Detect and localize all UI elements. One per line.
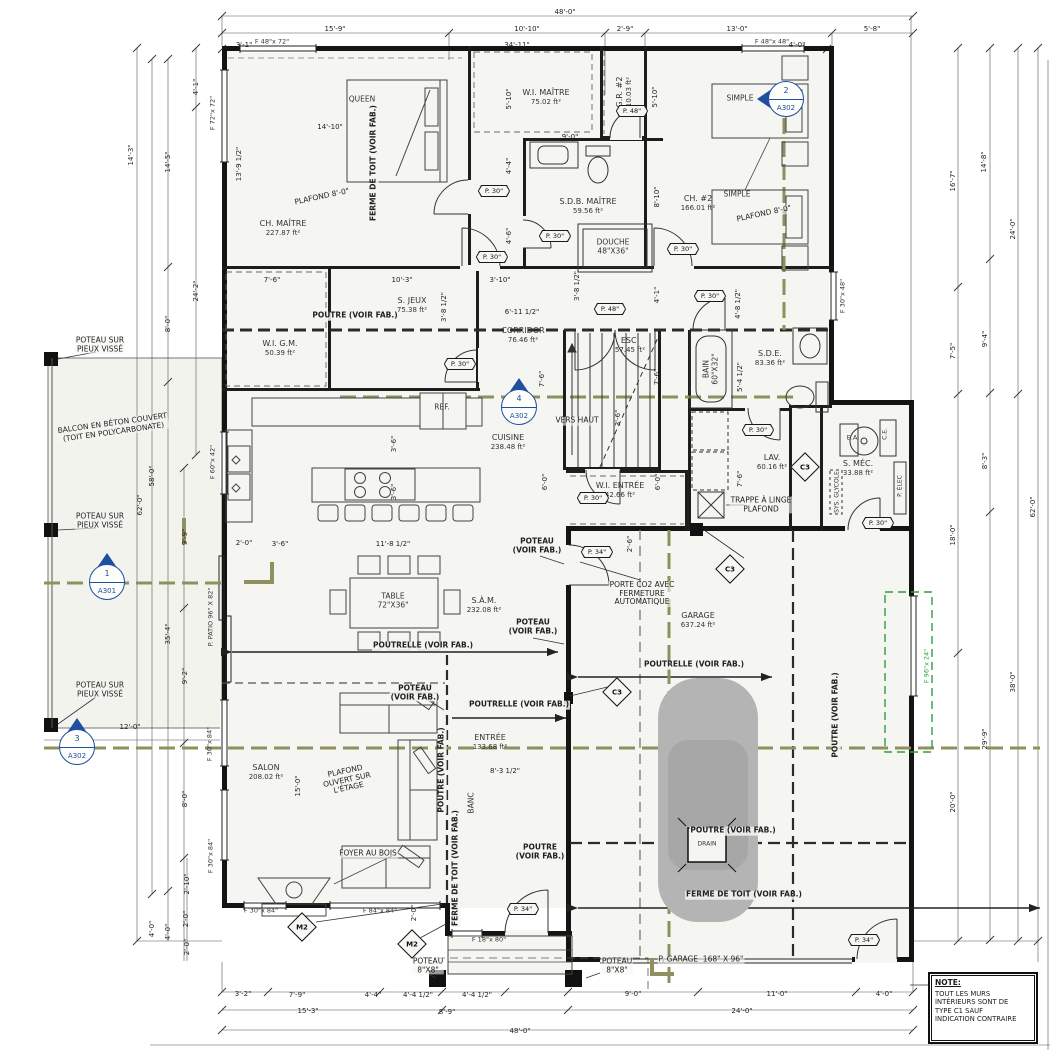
room-area: 76.46 ft² bbox=[508, 336, 538, 344]
room-label-ch-maitre: CH. MAÎTRE 227.87 ft² bbox=[260, 219, 307, 237]
dimensions-9-9: 9'-9" bbox=[181, 529, 189, 546]
annotations-poteau-8-x8: POTEAU 8"X8" bbox=[412, 957, 444, 974]
dimensions-2-6: 2'-6" bbox=[626, 536, 634, 553]
wall-type-tag-c3-0: C3 bbox=[790, 452, 820, 482]
annotations-poteau-voir-fab: POTEAU (VOIR FAB.) bbox=[390, 684, 441, 701]
annotations-ferme-de-toit-voir-fab: FERME DE TOIT (VOIR FAB.) bbox=[370, 104, 379, 222]
door-tag-text: P. 30" bbox=[695, 291, 725, 301]
furniture-labels-sys-glycole: SYS. GLYCOLE bbox=[835, 471, 842, 513]
door-tag-text: P. 30" bbox=[578, 493, 608, 503]
room-area: 57.45 ft² bbox=[615, 346, 645, 354]
dimensions-9-2: 9'-2" bbox=[181, 668, 189, 685]
room-area: 238.48 ft² bbox=[491, 443, 526, 451]
annotations-poutre-voir-fab: POUTRE (VOIR FAB.) bbox=[515, 843, 566, 860]
dimensions-2-0: 2'-0" bbox=[236, 539, 253, 547]
wall-type-tag-c3-2: C3 bbox=[602, 677, 632, 707]
dimensions-8-9: 8'-9" bbox=[439, 1008, 456, 1016]
dimensions-3-2: 3'-2" bbox=[235, 990, 252, 998]
room-area: 60.16 ft² bbox=[757, 463, 787, 471]
dimensions-15-9: 15'-9" bbox=[324, 25, 345, 33]
dimensions-4-1: 4'-1" bbox=[653, 287, 661, 304]
room-area: 166.01 ft² bbox=[681, 204, 716, 212]
dimensions-8-3: 8'-3" bbox=[981, 453, 989, 470]
furniture-labels-banc: BANC bbox=[468, 792, 477, 813]
dimensions-3-10: 3'-10" bbox=[489, 276, 510, 284]
annotations-poteau-sur-pieux-viss: POTEAU SUR PIEUX VISSÉ bbox=[75, 512, 125, 529]
annotations-plafond-ouvert-sur-l-tage: PLAFOND OUVERT SUR L'ÉTAGE bbox=[320, 762, 375, 798]
window-tags-f-60-x-42: F 60"x 42" bbox=[209, 445, 216, 479]
room-area: 50.39 ft² bbox=[265, 349, 295, 357]
wall-type-tag-m2-4: M2 bbox=[397, 929, 427, 959]
dimensions-6-11-1-2: 6'-11 1/2" bbox=[505, 308, 540, 316]
dimensions-48-0: 48'-0" bbox=[509, 1027, 530, 1035]
room-area: 232.08 ft² bbox=[467, 606, 502, 614]
section-circle: 1A301 bbox=[89, 564, 125, 600]
dimensions-3-6: 3'-6" bbox=[614, 410, 622, 427]
door-tag-p-30-4: P. 30" bbox=[694, 290, 726, 302]
annotations-poteau-voir-fab: POTEAU (VOIR FAB.) bbox=[512, 537, 563, 554]
room-name: S. MÉC. bbox=[843, 459, 873, 468]
door-tag-p-30-5: P. 30" bbox=[444, 358, 476, 370]
wall-type-text: C3 bbox=[612, 688, 622, 696]
dimensions-7-5: 7'-5" bbox=[949, 343, 957, 360]
room-name: CH. MAÎTRE bbox=[260, 219, 307, 228]
dimensions-5-10: 5'-10" bbox=[651, 86, 659, 107]
section-sheet: A302 bbox=[777, 100, 795, 117]
room-area: 75.02 ft² bbox=[531, 98, 561, 106]
room-area: 208.02 ft² bbox=[249, 773, 284, 781]
room-name: CORRIDOR bbox=[501, 326, 544, 335]
floor-plan: CH. MAÎTRE 227.87 ft²W.I. MAÎTRE 75.02 f… bbox=[0, 0, 1058, 1054]
room-name: S.D.B. MAÎTRE bbox=[559, 197, 616, 206]
section-circle: 2A302 bbox=[768, 81, 804, 117]
note-body: TOUT LES MURS INTÉRIEURS SONT DE TYPE C1… bbox=[935, 990, 1031, 1024]
annotations-plafond-8-0: PLAFOND 8'-0" bbox=[293, 187, 351, 207]
room-area: 227.87 ft² bbox=[266, 229, 301, 237]
room-name: S.À.M. bbox=[472, 596, 497, 605]
dimensions-58-0: 58'-0" bbox=[148, 465, 156, 486]
annotations-balcon-en-b-ton-couvert-toit-e: BALCON EN BÉTON COUVERT (TOIT EN POLYCAR… bbox=[56, 412, 170, 445]
annotations-plafond-8-0: PLAFOND 8'-0" bbox=[735, 204, 793, 224]
room-name: CH. #2 bbox=[684, 194, 712, 203]
dimensions-12-0: 12'-0" bbox=[119, 723, 140, 731]
room-area: 637.24 ft² bbox=[681, 621, 716, 629]
dimensions-4-1: 4'-1" bbox=[192, 79, 200, 96]
dimensions-4-0: 4'-0" bbox=[164, 924, 172, 941]
door-tag-p-30-0: P. 30" bbox=[478, 185, 510, 197]
annotations-vers-haut: VERS HAUT bbox=[554, 417, 599, 426]
dimensions-7-6: 7'-6" bbox=[736, 471, 744, 488]
dimensions-7-6: 7'-6" bbox=[653, 369, 661, 386]
dimensions-9-4: 9'-4" bbox=[981, 331, 989, 348]
section-marker-1-a301: 1A301 bbox=[89, 564, 125, 600]
door-tag-text: P. 34" bbox=[582, 547, 612, 557]
dimensions-4-4-1-2: 4'-4 1/2" bbox=[462, 991, 492, 999]
window-tags-f-30-x-84: F 30"x 84" bbox=[207, 839, 214, 873]
dimensions-15-3: 15'-3" bbox=[297, 1007, 318, 1015]
window-tags-f-30-x-84: F 30"x 84" bbox=[206, 727, 213, 761]
room-area: 133.68 ft² bbox=[473, 743, 508, 751]
section-circle: 4A302 bbox=[501, 389, 537, 425]
annotations-trappe-linge-plafond: TRAPPE À LINGE PLAFOND bbox=[730, 496, 793, 513]
room-label-s-jeux: S. JEUX 75.38 ft² bbox=[397, 296, 427, 314]
room-label-corridor: CORRIDOR 76.46 ft² bbox=[501, 326, 544, 344]
furniture-labels-simple: SIMPLE bbox=[727, 95, 754, 104]
wall-type-tag-c3-1: C3 bbox=[715, 554, 745, 584]
window-tags-f-30-x-48: F 30"x 48" bbox=[839, 279, 846, 313]
furniture-labels-drain: DRAIN bbox=[698, 842, 717, 849]
annotations-poteau-8-x8: POTEAU 8"X8" bbox=[601, 957, 633, 974]
annotations-poutre-voir-fab: POUTRE (VOIR FAB.) bbox=[832, 671, 841, 758]
room-name: CUISINE bbox=[492, 433, 524, 442]
dimensions-3-6: 3'-6" bbox=[390, 436, 398, 453]
section-sheet: A302 bbox=[510, 408, 528, 425]
furniture-labels-ref: REF. bbox=[434, 404, 449, 413]
dimensions-13-9-1-2: 13'-9 1/2" bbox=[235, 147, 243, 182]
room-label-esc: ESC. 57.45 ft² bbox=[615, 336, 645, 354]
wall-type-text: M2 bbox=[296, 923, 308, 931]
section-sheet: A302 bbox=[68, 748, 86, 765]
door-tag-text: P. 30" bbox=[540, 231, 570, 241]
section-marker-4-a302: 4A302 bbox=[501, 389, 537, 425]
section-number: 1 bbox=[90, 565, 124, 583]
dimensions-16-7: 16'-7" bbox=[949, 170, 957, 191]
room-area: 59.56 ft² bbox=[573, 207, 603, 215]
window-tags-f-84-x-84: F 84"x 84" bbox=[363, 907, 397, 914]
room-label-ch-2: CH. #2 166.01 ft² bbox=[681, 194, 716, 212]
dimensions-34-11: 34'-11" bbox=[504, 41, 529, 49]
annotations-foyer-au-bois: FOYER AU BOIS bbox=[338, 850, 398, 859]
dimensions-3-1: 3'-1" bbox=[236, 41, 253, 49]
door-tag-text: P. 34" bbox=[508, 904, 538, 914]
room-name: ESC. bbox=[621, 336, 639, 345]
annotations-poutrelle-voir-fab: POUTRELLE (VOIR FAB.) bbox=[372, 642, 474, 651]
dimensions-8-10: 8'-10" bbox=[653, 186, 661, 207]
annotations-poutre-voir-fab: POUTRE (VOIR FAB.) bbox=[689, 827, 776, 836]
door-tag-p-34-11: P. 34" bbox=[581, 546, 613, 558]
section-marker-2-a302: 2A302 bbox=[768, 81, 804, 117]
furniture-labels-p-lec: P. ÉLEC bbox=[898, 475, 905, 497]
door-tag-text: P. 30" bbox=[445, 359, 475, 369]
note-box: NOTE: TOUT LES MURS INTÉRIEURS SONT DE T… bbox=[928, 972, 1038, 1044]
dimensions-7-9: 7'-9" bbox=[289, 991, 306, 999]
dimensions-14-5: 14'-5" bbox=[164, 151, 172, 172]
wall-type-text: C3 bbox=[725, 565, 735, 573]
dimensions-5-10: 5'-10" bbox=[505, 88, 513, 109]
annotations-poutre-voir-fab: POUTRE (VOIR FAB.) bbox=[438, 726, 447, 813]
door-tag-text: P. 30" bbox=[668, 244, 698, 254]
dimensions-5-4-1-2: 5'-4 1/2" bbox=[736, 362, 744, 392]
window-tags-f-96-x-24: F 96"x 24" bbox=[923, 649, 930, 683]
room-area: 33.88 ft² bbox=[843, 469, 873, 477]
annotations-ferme-de-toit-voir-fab: FERME DE TOIT (VOIR FAB.) bbox=[685, 891, 803, 900]
dimensions-2-9: 2'-9" bbox=[617, 25, 634, 33]
dimensions-24-0: 24'-0" bbox=[1009, 218, 1017, 239]
dimensions-8-0: 8'-0" bbox=[181, 791, 189, 808]
room-area: 10.03 ft² bbox=[625, 77, 633, 107]
room-area: 42.66 ft² bbox=[605, 491, 635, 499]
dimensions-7-6: 7'-6" bbox=[538, 371, 546, 388]
window-tags-f-18-x-80: F 18"x 80" bbox=[472, 936, 506, 943]
room-label-s-mec: S. MÉC. 33.88 ft² bbox=[843, 459, 873, 477]
door-tag-text: P. 48" bbox=[617, 106, 647, 116]
dimensions-3-6: 3'-6" bbox=[390, 484, 398, 501]
room-label-sam: S.À.M. 232.08 ft² bbox=[467, 596, 502, 614]
room-label-wi-gm: W.I. G.M. 50.39 ft² bbox=[262, 339, 297, 357]
dimensions-4-4: 4'-4" bbox=[505, 158, 513, 175]
dimensions-62-0: 62'-0" bbox=[136, 494, 144, 515]
dimensions-35-4: 35'-4" bbox=[164, 623, 172, 644]
dimensions-4-0: 4'-0" bbox=[789, 41, 806, 49]
room-name: W.I. ENTRÉE bbox=[596, 481, 645, 490]
dimensions-4-0: 4'-0" bbox=[148, 921, 156, 938]
section-sheet: A301 bbox=[98, 583, 116, 600]
room-name: ENTRÉE bbox=[474, 733, 506, 742]
dimensions-6-0: 6'-0" bbox=[541, 474, 549, 491]
annotations-poutrelle-voir-fab: POUTRELLE (VOIR FAB.) bbox=[468, 701, 570, 710]
room-name: G.R. #2 bbox=[615, 77, 624, 108]
section-marker-3-a302: 3A302 bbox=[59, 729, 95, 765]
annotations-poutre-voir-fab: POUTRE (VOIR FAB.) bbox=[311, 312, 398, 321]
annotations-porte-co2-avec-fermeture-autom: PORTE CO2 AVEC FERMETURE AUTOMATIQUE bbox=[609, 581, 676, 607]
annotations-poutrelle-voir-fab: POUTRELLE (VOIR FAB.) bbox=[643, 661, 745, 670]
dimensions-15-0: 15'-0" bbox=[294, 775, 302, 796]
door-tag-text: P. 48" bbox=[595, 304, 625, 314]
furniture-labels-queen: QUEEN bbox=[349, 96, 375, 105]
room-name: S. JEUX bbox=[398, 296, 427, 305]
dimensions-8-0: 8'-0" bbox=[164, 316, 172, 333]
room-name: GARAGE bbox=[681, 611, 715, 620]
dimensions-38-0: 38'-0" bbox=[1009, 671, 1017, 692]
annotations-poteau-sur-pieux-viss: POTEAU SUR PIEUX VISSÉ bbox=[75, 336, 125, 353]
annotations-ferme-de-toit-voir-fab: FERME DE TOIT (VOIR FAB.) bbox=[452, 809, 461, 927]
dimensions-20-0: 20'-0" bbox=[949, 791, 957, 812]
window-tags-f-30-x-84: F 30"x 84" bbox=[244, 907, 278, 914]
room-area: 83.36 ft² bbox=[755, 359, 785, 367]
furniture-labels-douche-48-x36: DOUCHE 48"X36" bbox=[597, 238, 630, 255]
dimensions-13-0: 13'-0" bbox=[726, 25, 747, 33]
dimensions-3-6: 3'-6" bbox=[272, 540, 289, 548]
dimensions-4-0: 4'-0" bbox=[876, 990, 893, 998]
section-number: 3 bbox=[60, 730, 94, 748]
door-tag-p-48-6: P. 48" bbox=[616, 105, 648, 117]
room-name: W.I. G.M. bbox=[262, 339, 297, 348]
wall-type-text: M2 bbox=[406, 940, 418, 948]
furniture-labels-e-a: E.A. bbox=[847, 434, 860, 441]
room-area: 75.38 ft² bbox=[397, 306, 427, 314]
dimensions-2-0: 2'-0" bbox=[183, 939, 191, 956]
window-tags-p-patio-96-x-82: P. PATIO 96" X 82" bbox=[207, 588, 214, 647]
note-title: NOTE: bbox=[935, 978, 1031, 987]
room-label-salon: SALON 208.02 ft² bbox=[249, 763, 284, 781]
door-tag-p-30-3: P. 30" bbox=[667, 243, 699, 255]
furniture-labels-table-72-x36: TABLE 72"X36" bbox=[377, 592, 408, 609]
dimensions-24-0: 24'-0" bbox=[731, 1007, 752, 1015]
door-tag-p-34-13: P. 34" bbox=[848, 934, 880, 946]
room-label-cuisine: CUISINE 238.48 ft² bbox=[491, 433, 526, 451]
dimensions-24-2: 24'-2" bbox=[192, 280, 200, 301]
plan-labels: CH. MAÎTRE 227.87 ft²W.I. MAÎTRE 75.02 f… bbox=[0, 0, 1058, 1054]
room-label-wi-maitre: W.I. MAÎTRE 75.02 ft² bbox=[522, 88, 569, 106]
dimensions-11-8-1-2: 11'-8 1/2" bbox=[376, 540, 411, 548]
room-name: S.D.E. bbox=[758, 349, 782, 358]
dimensions-9-0: 9'-0" bbox=[625, 990, 642, 998]
dimensions-4-4: 4'-4" bbox=[365, 991, 382, 999]
annotations-poteau-sur-pieux-viss: POTEAU SUR PIEUX VISSÉ bbox=[75, 681, 125, 698]
dimensions-62-0: 62'-0" bbox=[1029, 496, 1037, 517]
dimensions-3-8-1-2: 3'-8 1/2" bbox=[440, 292, 448, 322]
door-tag-text: P. 34" bbox=[849, 935, 879, 945]
dimensions-14-10: 14'-10" bbox=[317, 123, 342, 131]
window-tags-f-48-x-48: F 48"x 48" bbox=[755, 38, 789, 45]
dimensions-4-8-1-2: 4'-8 1/2" bbox=[734, 289, 742, 319]
dimensions-2-0: 2'-0" bbox=[410, 905, 418, 922]
window-tags-f-72-x-72: F 72"x 72" bbox=[209, 96, 216, 130]
dimensions-3-8-1-2: 3'-8 1/2" bbox=[573, 271, 581, 301]
dimensions-6-0: 6'-0" bbox=[654, 474, 662, 491]
room-label-garage: GARAGE 637.24 ft² bbox=[681, 611, 716, 629]
dimensions-14-8: 14'-8" bbox=[980, 151, 988, 172]
dimensions-4-6: 4'-6" bbox=[505, 228, 513, 245]
door-tag-p-30-9: P. 30" bbox=[577, 492, 609, 504]
door-tag-p-30-10: P. 30" bbox=[862, 517, 894, 529]
dimensions-48-0: 48'-0" bbox=[554, 8, 575, 16]
room-name: LAV. bbox=[764, 453, 781, 462]
room-label-gr-2: G.R. #2 10.03 ft² bbox=[615, 77, 633, 108]
furniture-labels-c-e: C.E. bbox=[883, 428, 890, 440]
room-label-lav: LAV. 60.16 ft² bbox=[757, 453, 787, 471]
wall-type-text: C3 bbox=[800, 463, 810, 471]
dimensions-4-4-1-2: 4'-4 1/2" bbox=[403, 991, 433, 999]
room-name: W.I. MAÎTRE bbox=[522, 88, 569, 97]
dimensions-14-3: 14'-3" bbox=[127, 144, 135, 165]
dimensions-7-6: 7'-6" bbox=[264, 276, 281, 284]
section-number: 4 bbox=[502, 390, 536, 408]
door-tag-text: P. 30" bbox=[477, 252, 507, 262]
dimensions-10-3: 10'-3" bbox=[391, 276, 412, 284]
dimensions-2-10: 2'-10" bbox=[183, 873, 191, 894]
dimensions-18-0: 18'-0" bbox=[949, 524, 957, 545]
wall-type-tag-m2-3: M2 bbox=[287, 912, 317, 942]
section-circle: 3A302 bbox=[59, 729, 95, 765]
furniture-labels-simple: SIMPLE bbox=[724, 191, 751, 200]
window-tags-f-48-x-72: F 48"x 72" bbox=[255, 38, 289, 45]
section-number: 2 bbox=[769, 82, 803, 100]
furniture-labels-bain-60-x32: BAIN 60"X32" bbox=[702, 353, 719, 384]
dimensions-9-0: 9'-0" bbox=[562, 133, 579, 141]
door-tag-text: P. 30" bbox=[743, 425, 773, 435]
dimensions-11-0: 11'-0" bbox=[766, 990, 787, 998]
dimensions-29-9: 29'-9" bbox=[981, 728, 989, 749]
door-tag-p-30-2: P. 30" bbox=[476, 251, 508, 263]
door-tag-p-34-12: P. 34" bbox=[507, 903, 539, 915]
door-tag-p-30-1: P. 30" bbox=[539, 230, 571, 242]
door-tag-p-48-7: P. 48" bbox=[594, 303, 626, 315]
room-name: SALON bbox=[252, 763, 279, 772]
door-tag-text: P. 30" bbox=[479, 186, 509, 196]
dimensions-2-0: 2'-0" bbox=[182, 911, 190, 928]
room-label-sdb-maitre: S.D.B. MAÎTRE 59.56 ft² bbox=[559, 197, 616, 215]
dimensions-10-10: 10'-10" bbox=[514, 25, 539, 33]
door-tag-text: P. 30" bbox=[863, 518, 893, 528]
dimensions-8-3-1-2: 8'-3 1/2" bbox=[490, 767, 520, 775]
door-tag-p-30-8: P. 30" bbox=[742, 424, 774, 436]
room-label-entree: ENTRÉE 133.68 ft² bbox=[473, 733, 508, 751]
room-label-sde: S.D.E. 83.36 ft² bbox=[755, 349, 785, 367]
dimensions-5-8: 5'-8" bbox=[864, 25, 881, 33]
annotations-poteau-voir-fab: POTEAU (VOIR FAB.) bbox=[508, 618, 559, 635]
annotations-p-garage-168-x-96: P. GARAGE 168" X 96" bbox=[658, 956, 745, 965]
